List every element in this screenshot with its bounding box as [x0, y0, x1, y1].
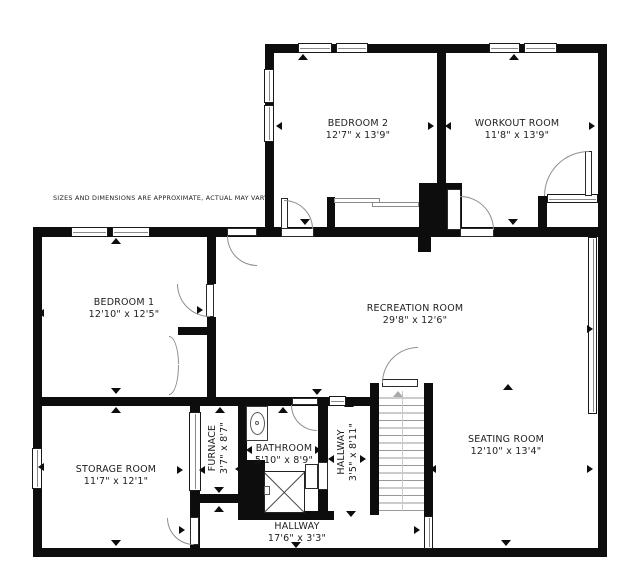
window: [71, 227, 108, 237]
room-name: BEDROOM 2: [326, 118, 391, 130]
staircase-center-line: [402, 391, 403, 511]
room-name: HALLWAY: [336, 423, 348, 481]
room-dimensions: 3'5" x 8'11": [348, 423, 360, 481]
sliding-closet-door: [372, 202, 419, 207]
dimension-arrow: [587, 325, 593, 333]
room-name: BATHROOM: [255, 443, 313, 455]
door-arc: [177, 284, 210, 317]
room-dimensions: 12'10" x 12'5": [89, 309, 160, 321]
door-arc: [169, 336, 179, 364]
wall: [207, 237, 216, 284]
window: [524, 43, 557, 53]
dimension-arrow: [214, 506, 224, 512]
room-name: STORAGE ROOM: [76, 464, 156, 476]
room-label-bedroom-1: BEDROOM 112'10" x 12'5": [89, 297, 160, 321]
room-name: WORKOUT ROOM: [475, 118, 560, 130]
dimension-arrow: [430, 465, 436, 473]
dimension-arrow: [111, 388, 121, 394]
room-dimensions: 12'10" x 13'4": [468, 446, 544, 458]
door-arc: [291, 405, 317, 431]
dimension-arrow: [587, 465, 593, 473]
door-leaf: [227, 228, 257, 236]
room-label-bathroom: BATHROOM5'10" x 8'9": [255, 443, 313, 467]
door-arc: [169, 365, 179, 395]
dimension-arrow: [235, 465, 241, 473]
dimension-arrow: [246, 446, 252, 454]
dimension-arrow: [214, 487, 224, 493]
room-dimensions: 29'8" x 12'6": [367, 315, 464, 327]
door-arc: [460, 196, 494, 230]
wall: [318, 406, 328, 512]
window: [264, 105, 274, 142]
window: [298, 43, 332, 53]
disclaimer-text: SIZES AND DIMENSIONS ARE APPROXIMATE, AC…: [53, 194, 269, 202]
dimension-arrow: [414, 526, 420, 534]
room-name: FURNACE: [207, 422, 219, 474]
wall: [238, 460, 265, 515]
room-dimensions: 12'7" x 13'9": [326, 130, 391, 142]
dimension-arrow: [315, 446, 321, 454]
floorplan: SIZES AND DIMENSIONS ARE APPROXIMATE, AC…: [0, 0, 640, 581]
room-label-furnace: FURNACE3'7" x 8'7": [207, 422, 231, 474]
sink-drain: [255, 421, 259, 425]
door-arc: [382, 347, 418, 383]
door-leaf: [292, 398, 318, 405]
dimension-arrow: [300, 219, 310, 225]
dimension-arrow: [276, 122, 282, 130]
room-label-storage-room: STORAGE ROOM11'7" x 12'1": [76, 464, 156, 488]
room-dimensions: 11'7" x 12'1": [76, 476, 156, 488]
stair-direction-arrow: [393, 391, 403, 397]
wall: [33, 548, 607, 557]
dimension-arrow: [501, 540, 511, 546]
dimension-arrow: [346, 511, 356, 517]
dimension-arrow: [428, 122, 434, 130]
door-arc: [544, 151, 589, 196]
room-label-bedroom-2: BEDROOM 212'7" x 13'9": [326, 118, 391, 142]
wall: [418, 235, 431, 252]
window: [112, 227, 150, 237]
window: [336, 43, 368, 53]
wall: [437, 53, 446, 184]
wall: [33, 397, 216, 406]
room-name: RECREATION ROOM: [367, 303, 464, 315]
dimension-arrow: [111, 540, 121, 546]
room-dimensions: 17'6" x 3'3": [268, 533, 326, 545]
room-name: BEDROOM 1: [89, 297, 160, 309]
window: [264, 69, 274, 103]
room-dimensions: 11'8" x 13'9": [475, 130, 560, 142]
shower-head: [264, 486, 270, 495]
dimension-arrow: [199, 466, 205, 474]
dimension-arrow: [111, 238, 121, 244]
shower-stall: [264, 471, 305, 513]
wall: [33, 228, 42, 557]
window: [189, 412, 201, 491]
room-name: SEATING ROOM: [468, 434, 544, 446]
dimension-arrow: [215, 407, 225, 413]
wall: [178, 327, 215, 335]
wall: [370, 383, 379, 515]
room-dimensions: 3'7" x 8'7": [219, 422, 231, 474]
room-label-workout-room: WORKOUT ROOM11'8" x 13'9": [475, 118, 560, 142]
dimension-arrow: [197, 306, 203, 314]
dimension-arrow: [503, 384, 513, 390]
dimension-arrow: [177, 466, 183, 474]
wall: [598, 44, 607, 557]
door-leaf: [281, 228, 314, 237]
room-label-hallway-vertical: HALLWAY3'5" x 8'11": [336, 423, 360, 481]
dimension-arrow: [38, 309, 44, 317]
dimension-arrow: [312, 389, 322, 395]
dimension-arrow: [445, 122, 451, 130]
dimension-arrow: [344, 401, 354, 407]
dimension-arrow: [509, 54, 519, 60]
dimension-arrow: [38, 463, 44, 471]
window: [489, 43, 520, 53]
room-label-seating-room: SEATING ROOM12'10" x 13'4": [468, 434, 544, 458]
window: [424, 516, 433, 549]
room-dimensions: 5'10" x 8'9": [255, 455, 313, 467]
dimension-arrow: [508, 219, 518, 225]
dimension-arrow: [179, 526, 185, 534]
wall: [538, 196, 547, 232]
dimension-arrow: [298, 54, 308, 60]
door-leaf: [447, 189, 461, 230]
door-leaf: [318, 462, 328, 490]
dimension-arrow: [328, 455, 334, 463]
dimension-arrow: [360, 455, 366, 463]
dimension-arrow: [589, 122, 595, 130]
dimension-arrow: [278, 407, 288, 413]
door-arc: [227, 236, 257, 266]
room-name: HALLWAY: [268, 521, 326, 533]
door-leaf: [305, 464, 318, 489]
dimension-arrow: [111, 407, 121, 413]
room-label-recreation-room: RECREATION ROOM29'8" x 12'6": [367, 303, 464, 327]
room-label-hallway: HALLWAY17'6" x 3'3": [268, 521, 326, 545]
